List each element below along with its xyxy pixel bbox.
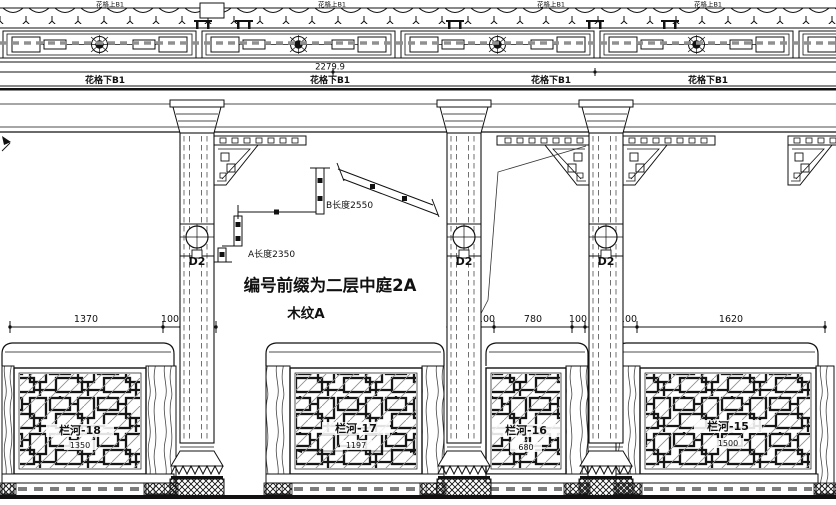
frieze-upper-label: 花格上B1 xyxy=(537,0,565,9)
frieze-lower-label: 花格下B1 xyxy=(85,74,125,86)
column-tag: D2 xyxy=(598,255,615,268)
frieze-upper-label: 花格上B1 xyxy=(694,0,722,9)
detail-b-length-label: B长度2550 xyxy=(326,199,373,211)
dim-780: 780 xyxy=(524,314,542,325)
dimension-chain: 1370 100 240 240 100 780 100 240 100 162… xyxy=(8,314,826,333)
architrave-beam xyxy=(0,86,836,132)
panel-width-label: 1350 xyxy=(70,441,90,450)
column-2 xyxy=(437,100,491,497)
frieze-upper-label: 花格上B1 xyxy=(96,0,124,9)
panel-label: 栏河-17 xyxy=(335,421,377,435)
corbel-bracket xyxy=(788,136,836,185)
dim-100: 100 xyxy=(569,314,587,325)
corbel-brackets xyxy=(214,136,836,185)
frieze-upper-label: 花格上B1 xyxy=(318,0,346,9)
frieze-lower-label: 花格下B1 xyxy=(531,74,571,86)
panel-label: 栏河-16 xyxy=(505,423,547,437)
column-tag: D2 xyxy=(189,255,206,268)
corbel-bracket xyxy=(497,136,589,185)
ground-line xyxy=(0,495,836,499)
frieze-lower-label: 花格下B1 xyxy=(310,74,350,86)
column-tag: D2 xyxy=(456,255,473,268)
railing-panel-17: 栏河-17 1197 xyxy=(290,368,422,474)
cad-elevation-drawing: 花格上B1 花格上B1 花格上B1 花格上B1 2279.9 花格下B1 花格下… xyxy=(0,0,836,505)
drawing-canvas: 花格上B1 花格上B1 花格上B1 花格上B1 2279.9 花格下B1 花格下… xyxy=(0,0,836,505)
detail-a-length-label: A长度2350 xyxy=(248,248,295,260)
roof-scallop-band: 花格上B1 花格上B1 花格上B1 花格上B1 xyxy=(0,0,836,24)
dim-100: 100 xyxy=(161,314,179,325)
panel-width-label: 1197 xyxy=(346,441,366,450)
wood-grain-note: 木纹A xyxy=(286,305,325,322)
section-break-symbol xyxy=(200,3,224,18)
railing: 栏河-18 1350 栏河-17 1197 栏河-16 680 xyxy=(0,343,836,499)
railing-base xyxy=(0,474,836,499)
railing-panel-15: 栏河-15 1500 xyxy=(640,368,816,474)
rail-caps xyxy=(2,343,818,366)
span-dimension: 2279.9 xyxy=(315,63,345,73)
dim-1370: 1370 xyxy=(74,314,98,325)
corbel-bracket xyxy=(214,136,306,185)
dim-1620: 1620 xyxy=(719,314,743,325)
railing-panel-16: 栏河-16 680 xyxy=(486,368,566,474)
drawing-note-title: 编号前缀为二层中庭2A xyxy=(244,275,417,295)
panel-label: 栏河-15 xyxy=(707,419,749,433)
frieze-dimension-row: 2279.9 花格下B1 花格下B1 花格下B1 花格下B1 xyxy=(0,62,836,86)
lattice-frieze-band xyxy=(0,20,836,58)
detail-annotation: B长度2550 A长度2350 xyxy=(212,163,439,262)
panel-width-label: 680 xyxy=(518,443,533,452)
left-edge-marker xyxy=(2,136,11,151)
railing-panel-18: 栏河-18 1350 xyxy=(14,368,146,474)
panel-width-label: 1500 xyxy=(718,439,738,448)
panel-label: 栏河-18 xyxy=(59,423,101,437)
corbel-bracket xyxy=(623,136,715,185)
frieze-lower-label: 花格下B1 xyxy=(688,74,728,86)
